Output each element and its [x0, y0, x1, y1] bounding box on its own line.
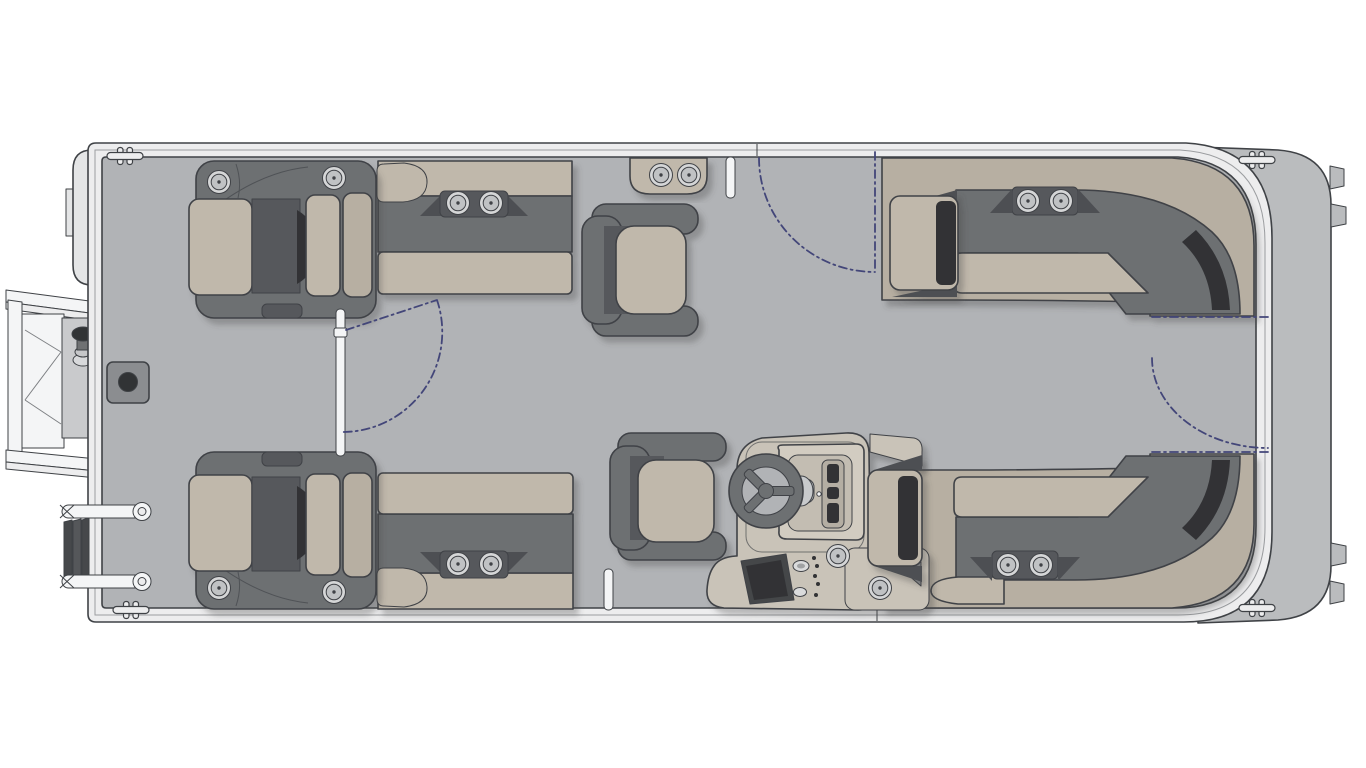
cup-holder: [1050, 190, 1073, 213]
floorplan: Pontoon boat floor plan - top-down view: [0, 0, 1366, 768]
recliner-backrest-cushion: [306, 474, 340, 575]
recliner-backrest-cushion: [343, 193, 372, 297]
cup-holder: [650, 164, 673, 187]
gauge-screen: [827, 503, 839, 523]
cup-holder: [678, 164, 701, 187]
cup-holder: [480, 192, 503, 215]
cup-holder: [208, 577, 231, 600]
cup-holder: [208, 171, 231, 194]
bench-seat: [378, 252, 572, 294]
bench-walkthrough-cap: [377, 568, 427, 607]
boarding-door: [6, 290, 98, 478]
gate-post-upper: [726, 157, 735, 198]
cup-holder: [1030, 554, 1053, 577]
bench-walkthrough-cap: [377, 163, 427, 202]
cup-holder: [827, 545, 850, 568]
cup-holder: [869, 577, 892, 600]
recliner-upper: [189, 161, 376, 318]
cup-holder: [323, 581, 346, 604]
lounge-walkthrough-cap: [931, 577, 1004, 604]
gate-center-leaf: [334, 309, 347, 456]
pontoon-nose-tab: [1331, 543, 1346, 566]
pontoon-nose-tab: [1331, 204, 1346, 227]
l-lounge-lower: [882, 454, 1254, 608]
cup-holder: [997, 554, 1020, 577]
recliner-backrest-cushion: [306, 195, 340, 296]
gauge-screen: [827, 487, 839, 499]
lounge-armrest-upper: [890, 190, 958, 297]
pontoon-nose-tab: [1330, 166, 1344, 189]
recliner-backrest-cushion: [343, 473, 372, 577]
cupholder-console: [630, 158, 707, 194]
gauge-screen: [827, 464, 839, 483]
recliner-lower: [189, 452, 376, 609]
recliner-chaise-cushion: [189, 475, 252, 571]
bench-seat: [378, 473, 573, 514]
gate-post-lower: [604, 569, 613, 610]
bench-lower: [377, 473, 573, 609]
recliner-chaise-cushion: [189, 199, 252, 295]
gate-hinge: [334, 328, 347, 337]
cup-holder: [447, 192, 470, 215]
bench-upper: [377, 161, 572, 294]
cup-holder: [323, 167, 346, 190]
cup-holder: [1017, 190, 1040, 213]
cup-holder: [480, 553, 503, 576]
accessory-switch: [794, 588, 807, 597]
swivel-chair-upper: [582, 204, 698, 336]
swivel-chair-lower: [610, 433, 726, 560]
table-pedestal-base: [107, 362, 149, 403]
chair-seat: [616, 226, 686, 314]
lounge-armrest-lower: [868, 455, 922, 582]
pontoon-nose-tab: [1330, 581, 1344, 604]
floorplan-canvas: Pontoon boat floor plan - top-down view: [0, 0, 1366, 768]
chair-seat: [638, 460, 714, 542]
cup-holder: [447, 553, 470, 576]
